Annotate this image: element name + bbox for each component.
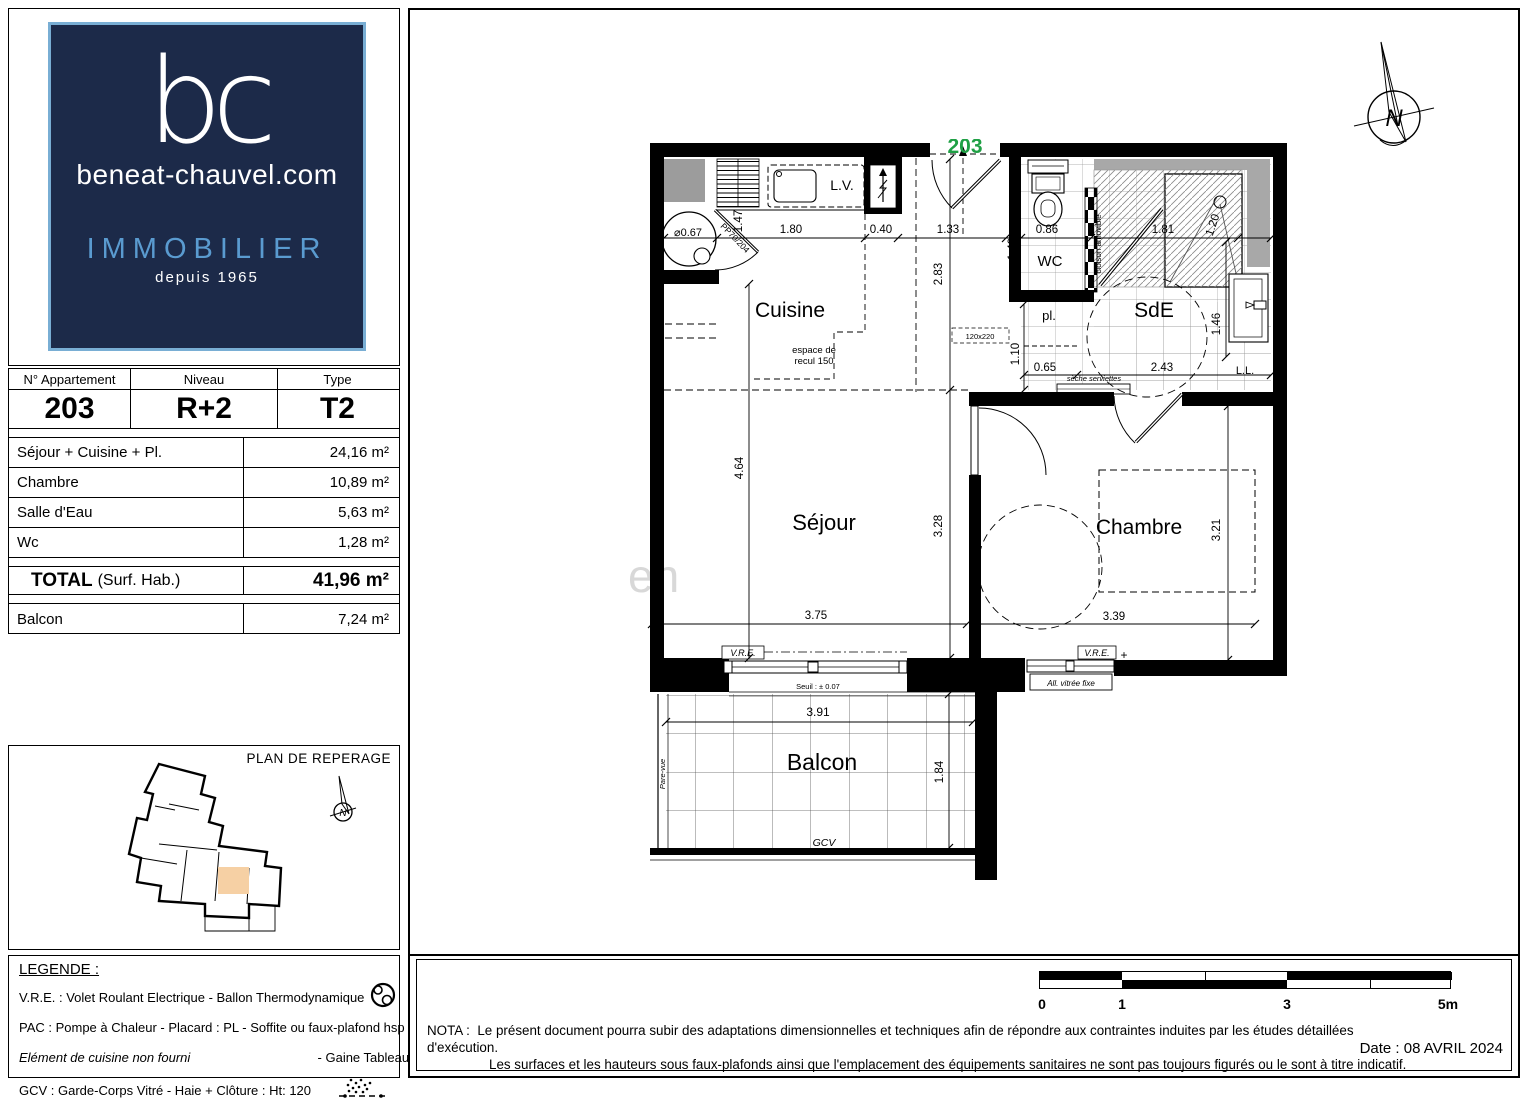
apartment-level-header: Niveau — [131, 369, 278, 389]
dim-label: 2.83 — [933, 263, 945, 285]
legend-row: GCV : Garde-Corps Vitré - Haie + Clôture… — [19, 1075, 389, 1107]
table-row: Salle d'Eau 5,63 m² — [9, 498, 399, 528]
apartment-values-row: 203 R+2 T2 — [9, 390, 399, 429]
plan-sheet: en — [408, 8, 1520, 1078]
balcon-value: 7,24 m² — [244, 604, 399, 634]
location-plan-title: PLAN DE REPERAGE — [246, 751, 391, 766]
location-plan-panel: PLAN DE REPERAGE N — [8, 745, 400, 950]
surface-value: 10,89 m² — [244, 468, 399, 497]
scale-bar: 0 1 3 5m — [1039, 971, 1451, 989]
surface-label: Chambre — [9, 468, 244, 497]
date-label: Date : 08 AVRIL 2024 — [1360, 1040, 1503, 1057]
brand-since: depuis 1965 — [155, 269, 259, 286]
nota-line1: NOTA : Le présent document pourra subir … — [427, 1022, 1417, 1056]
apartment-type: T2 — [278, 390, 397, 428]
nota-line2: Les surfaces et les hauteurs sous faux-p… — [489, 1056, 1417, 1073]
apartment-header-row: N° Appartement Niveau Type — [9, 369, 399, 390]
surface-value: 24,16 m² — [244, 438, 399, 467]
table-spacer — [9, 429, 399, 438]
legend-row: V.R.E. : Volet Roulant Electrique - Ball… — [19, 981, 389, 1015]
apartment-level: R+2 — [131, 390, 278, 428]
surface-label: Salle d'Eau — [9, 498, 244, 527]
scale-label-1: 1 — [1118, 996, 1126, 1012]
svg-text:N: N — [339, 808, 347, 819]
surface-value: 1,28 m² — [244, 528, 399, 557]
table-spacer — [9, 595, 399, 604]
total-row: TOTAL (Surf. Hab.) 41,96 m² — [9, 567, 399, 595]
room-label-placard: pl. — [1042, 308, 1056, 323]
brand-initials: bc — [147, 45, 267, 157]
annotation-seuil: Seuil : ± 0.07 — [796, 682, 840, 691]
total-label-cell: TOTAL (Surf. Hab.) — [9, 567, 244, 594]
annotation-allege: All. vitrée fixe — [1046, 679, 1095, 688]
surface-label: Séjour + Cuisine + Pl. — [9, 438, 244, 467]
scale-label-5m: 5m — [1438, 996, 1458, 1012]
title-strip: 0 1 3 5m NOTA : Le présent document pour… — [410, 954, 1518, 1078]
dim-label: 2.43 — [1151, 362, 1173, 374]
balcon-label: Balcon — [9, 604, 244, 634]
annotation-vre-chambre: V.R.E. — [1084, 648, 1109, 658]
total-value: 41,96 m² — [244, 567, 399, 594]
dim-label: 1.80 — [780, 224, 802, 236]
dim-label: 1.84 — [934, 760, 946, 783]
dim-label: 3.39 — [1103, 611, 1125, 623]
dim-label: 3.28 — [933, 515, 945, 537]
haie-cloture-icon — [337, 1075, 389, 1107]
legend-text: PAC : Pompe à Chaleur - Placard : PL - S… — [19, 1018, 438, 1038]
room-label-sejour: Séjour — [792, 510, 856, 535]
room-label-sde: SdE — [1134, 299, 1174, 322]
dim-label: 3.75 — [805, 610, 827, 622]
balcon-row: Balcon 7,24 m² — [9, 604, 399, 634]
legend-panel: LEGENDE : V.R.E. : Volet Roulant Electri… — [8, 955, 400, 1078]
legend-row: PAC : Pompe à Chaleur - Placard : PL - S… — [19, 1015, 389, 1041]
dim-label: 4.64 — [734, 456, 746, 479]
table-row: Séjour + Cuisine + Pl. 24,16 m² — [9, 438, 399, 468]
annotation-porte-fenetre: 120x220 — [966, 332, 995, 341]
north-letter: N — [1385, 105, 1403, 132]
dim-label: 1.47 — [733, 210, 745, 232]
nota-panel: 0 1 3 5m NOTA : Le présent document pour… — [416, 959, 1512, 1071]
total-note: (Surf. Hab.) — [98, 572, 181, 590]
surface-label: Wc — [9, 528, 244, 557]
room-label-chambre: Chambre — [1096, 516, 1182, 539]
scale-label-0: 0 — [1038, 996, 1046, 1012]
room-label-balcon: Balcon — [787, 749, 857, 775]
north-arrow: N — [1354, 42, 1434, 146]
table-spacer — [9, 558, 399, 567]
nota-line1-text: Le présent document pourra subir des ada… — [427, 1023, 1354, 1055]
legend-text: V.R.E. : Volet Roulant Electrique - Ball… — [19, 988, 364, 1008]
legend-text: GCV : Garde-Corps Vitré - Haie + Clôture… — [19, 1081, 311, 1101]
apartment-type-header: Type — [278, 369, 397, 389]
dim-label: 0.86 — [1036, 224, 1058, 236]
dim-label: 0.40 — [870, 224, 892, 236]
annotation-cloison: cloison amovible — [1094, 214, 1103, 274]
dim-label: 0.65 — [1034, 362, 1056, 374]
apartment-number-header: N° Appartement — [9, 369, 131, 389]
nota-label: NOTA : — [427, 1023, 470, 1038]
dim-label: 1.46 — [1211, 313, 1223, 335]
floor-plan: en — [410, 10, 1518, 954]
dim-label: 1.33 — [937, 224, 959, 236]
legend-row: Elément de cuisine non fourni - Gaine Ta… — [19, 1041, 389, 1075]
nota-text: NOTA : Le présent document pourra subir … — [427, 1022, 1417, 1073]
building-footprint — [129, 764, 281, 918]
brand-domain: beneat-chauvel.com — [76, 159, 337, 191]
total-label: TOTAL — [17, 570, 93, 592]
legend-title: LEGENDE : — [19, 961, 389, 978]
apartment-info-table: N° Appartement Niveau Type 203 R+2 T2 Sé… — [8, 368, 400, 634]
mini-north-icon: N — [330, 776, 356, 821]
annotation-recul-1: espace de — [792, 345, 836, 356]
surface-value: 5,63 m² — [244, 498, 399, 527]
brand-tagline: IMMOBILIER — [87, 233, 328, 266]
apartment-number: 203 — [9, 390, 131, 428]
logo-panel: bc beneat-chauvel.com IMMOBILIER depuis … — [8, 8, 400, 366]
dim-label: 1.49 — [1007, 238, 1019, 260]
table-row: Wc 1,28 m² — [9, 528, 399, 558]
legend-text-italic: Elément de cuisine non fourni — [19, 1050, 190, 1065]
dim-label: 1.10 — [1010, 343, 1022, 365]
annotation-pare-vue: Pare-vue — [658, 759, 667, 789]
room-label-cuisine: Cuisine — [755, 299, 825, 322]
annotation-ballon: ⌀0.67 — [674, 227, 702, 239]
room-label-wc: WC — [1038, 253, 1063, 270]
ballon-thermodynamique-icon — [368, 981, 398, 1015]
annotation-lv: L.V. — [830, 177, 854, 193]
location-mini-map: N — [9, 746, 398, 947]
annotation-seche: sèche serviettes — [1067, 374, 1121, 383]
building-partitions — [141, 804, 275, 931]
brand-logo: bc beneat-chauvel.com IMMOBILIER depuis … — [48, 22, 366, 351]
legend-text-composite: Elément de cuisine non fourni - Gaine Ta… — [19, 1048, 471, 1068]
table-row: Chambre 10,89 m² — [9, 468, 399, 498]
annotation-plus: + — [1120, 648, 1127, 662]
annotation-vre-sejour: V.R.E. — [730, 648, 755, 658]
scale-label-3: 3 — [1283, 996, 1291, 1012]
annotation-recul-2: recul 150 — [794, 356, 833, 367]
dim-label: 1.81 — [1152, 224, 1174, 236]
dim-label: 3.21 — [1211, 519, 1223, 541]
annotation-ll: L.L. — [1236, 365, 1254, 377]
dim-label: 3.91 — [806, 705, 830, 719]
annotation-gcv: GCV — [813, 837, 837, 849]
highlighted-unit — [218, 867, 249, 894]
